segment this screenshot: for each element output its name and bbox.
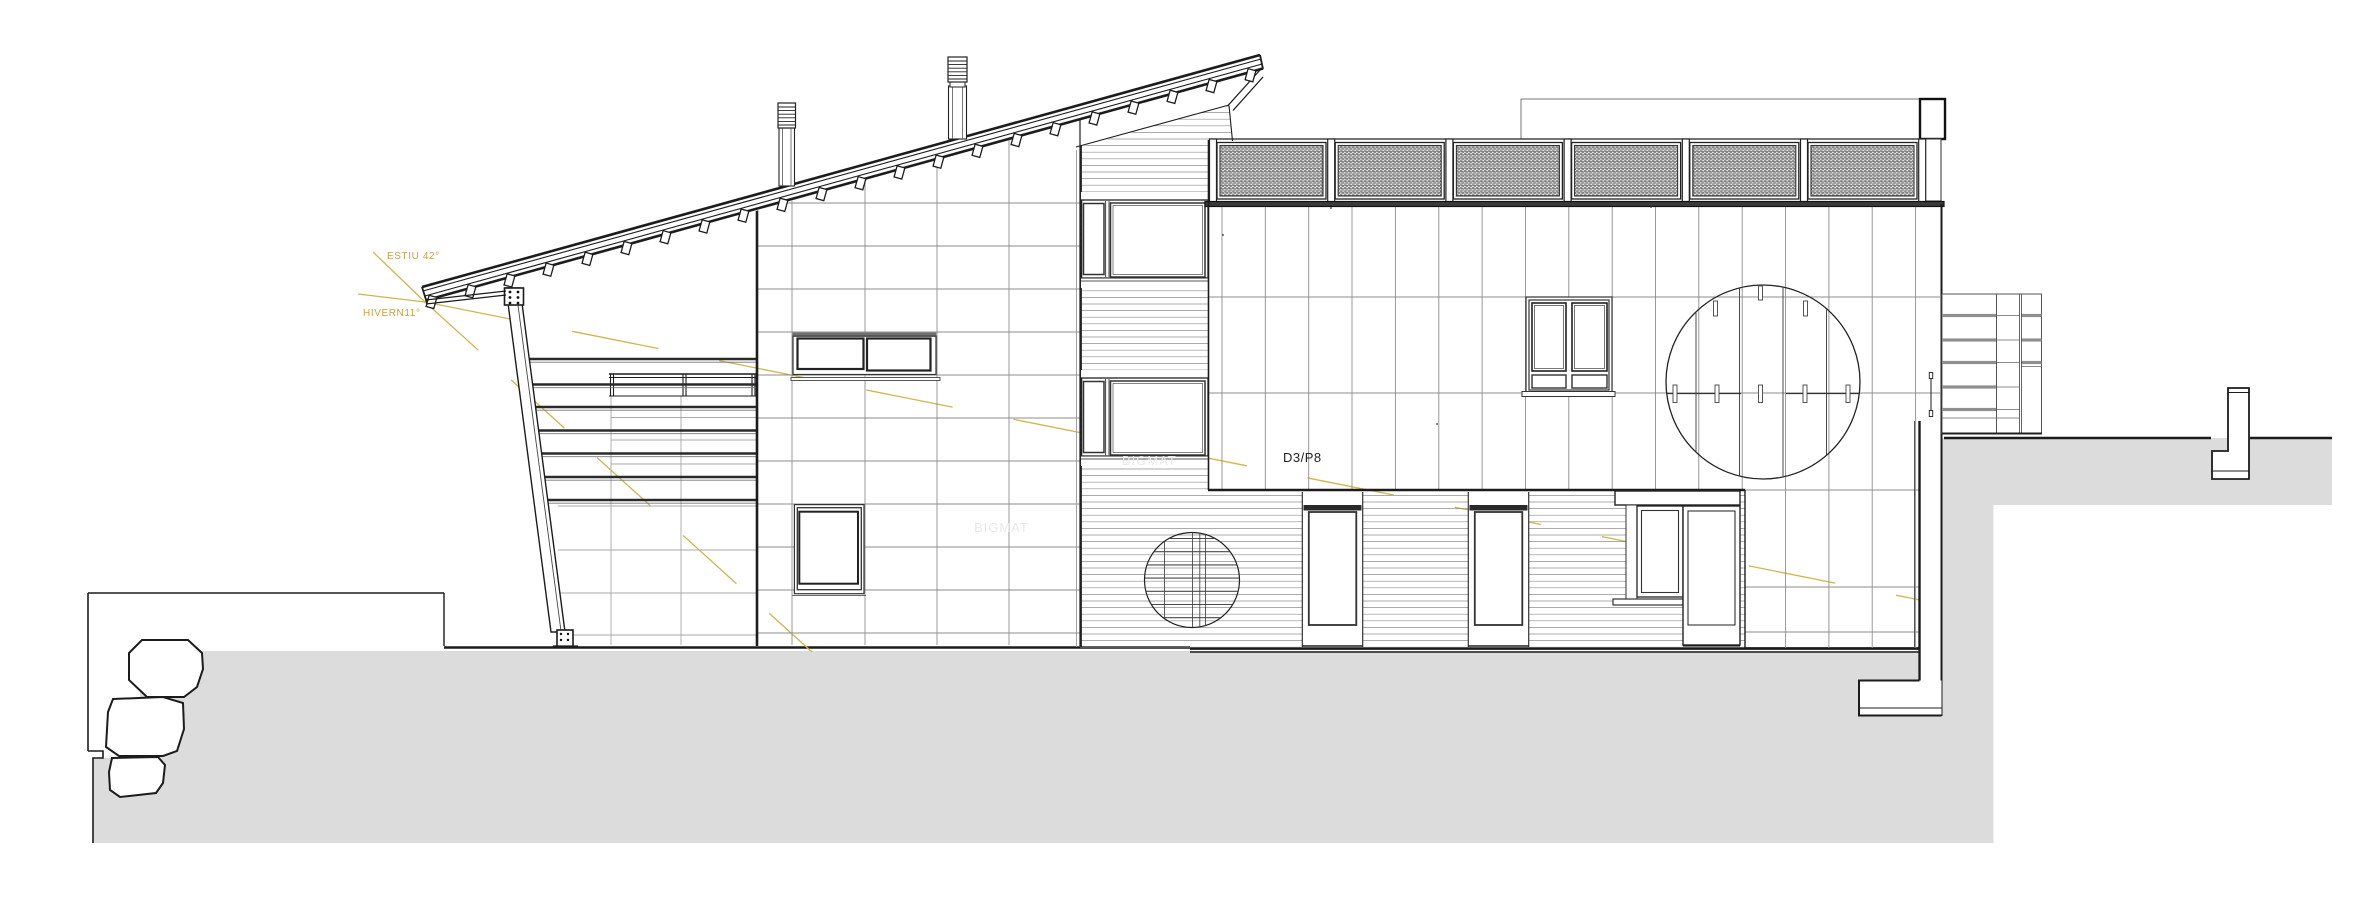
svg-text:HIVERN11°: HIVERN11° (363, 308, 421, 319)
svg-text:D3/P8: D3/P8 (1283, 450, 1322, 465)
svg-text:BIGMAT: BIGMAT (974, 520, 1029, 535)
svg-text:ESTIU 42°: ESTIU 42° (387, 251, 440, 262)
svg-text:BIGMAT: BIGMAT (1122, 453, 1177, 468)
